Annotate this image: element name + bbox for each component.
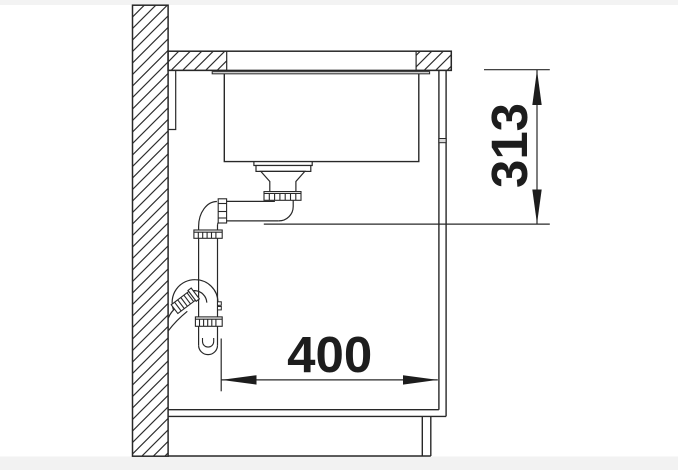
svg-text:313: 313: [481, 103, 538, 188]
svg-text:400: 400: [287, 326, 372, 383]
